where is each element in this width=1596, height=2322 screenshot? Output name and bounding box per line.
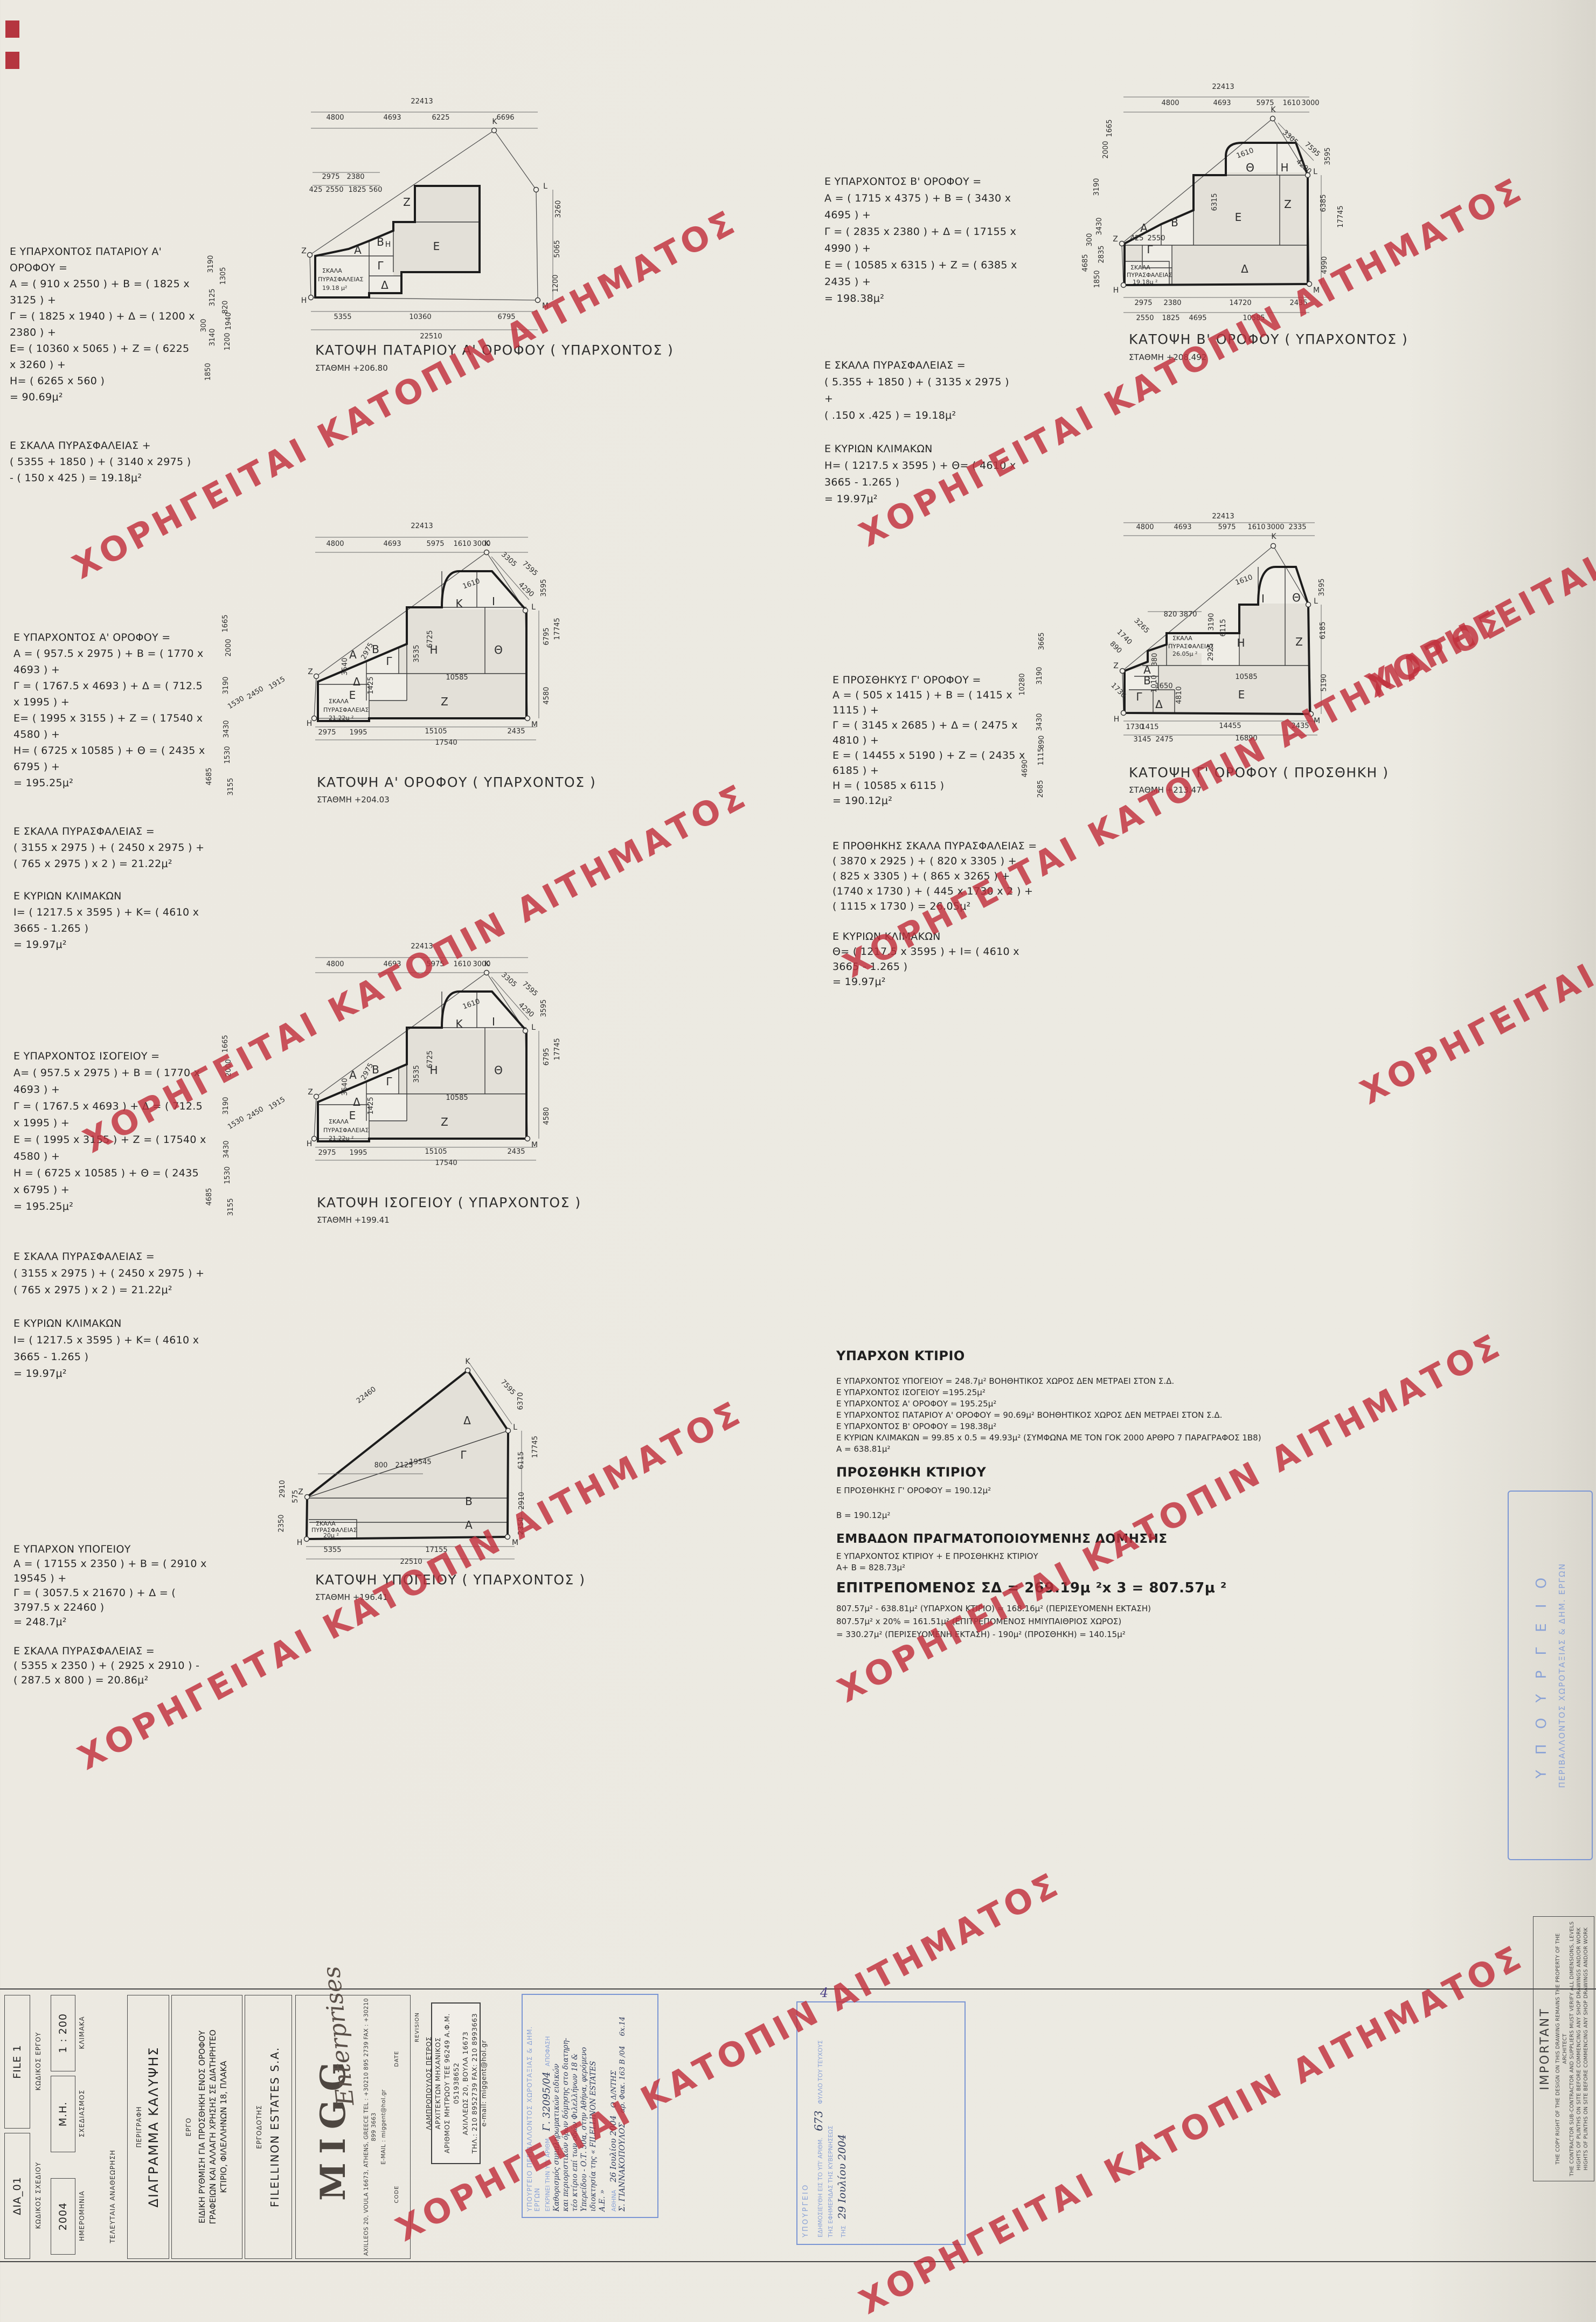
dimension-label: 2450 [246,1105,265,1121]
point-label: L [513,1423,517,1432]
zone-label: Γ [386,655,392,668]
dimension-label: 17540 [435,739,457,747]
description-value: ΔΙΑΓΡΑΜΜΑ ΚΑΛΥΨΗΣ [146,2047,161,2208]
important-notice: IMPORTANT THE COPY RIGHT OF THE DESIGN O… [1533,1916,1594,2181]
field-designer: M.H. [51,2076,75,2152]
dimension-label: ΣΚΑΛΑ [329,698,349,705]
point-label: K [1271,106,1276,114]
point-label: K [484,539,490,548]
point-label: Z [301,247,307,255]
dimension-label: 1610 [1282,99,1300,107]
registration-mark [5,20,19,38]
dimension-label: ΣΚΑΛΑ [322,267,342,274]
point-label: L [1314,597,1318,606]
stamp2-number-handwritten: 673 [812,2111,825,2131]
dimension-label: 3305 [499,971,518,989]
titleblock-top-border [0,1988,1596,1990]
dimension-label: 6115 [517,1451,525,1469]
point-label: Z [308,1088,313,1097]
point-label: K [465,1357,470,1366]
dimension-label: 10280 [1018,673,1026,695]
dimension-label: 300 [1086,233,1094,247]
dimension-label: 1915 [267,675,287,691]
zone-label: Ε [349,689,356,702]
plan-title: ΚΑΤΟΨΗ ΙΣΟΓΕΙΟΥ ( ΥΠΑΡΧΟΝΤΟΣ ) [317,1195,581,1210]
dimension-label: 19.18 μ² [322,285,347,292]
ministry-name: Υ Π Ο Υ Ρ Γ Ε Ι Ο [1533,1572,1550,1779]
dimension-label: 17745 [1337,205,1345,227]
registration-mark [5,52,19,69]
dimension-label: 3190 [207,255,215,273]
dimension-label: ΠΥΡΑΣΦΑΛΕΙΑΣ [318,276,364,283]
dimension-label: 2550 [325,186,343,194]
point-label: L [1313,168,1317,176]
dimension-label: 1530 [226,1115,246,1131]
zone-label: Θ [1292,591,1301,604]
dimension-label: 15105 [425,727,447,736]
dimension-label: 3125 [209,288,217,306]
dimension-label: 2975 [1134,299,1152,307]
important-title: IMPORTANT [1538,2007,1552,2090]
ministry-side-stamp: Υ Π Ο Υ Ρ Γ Ε Ι Ο ΠΕΡΙΒΑΛΛΟΝΤΟΣ ΧΩΡΟΤΑΞΙ… [1508,1491,1593,1860]
date-label: DATE [394,2051,400,2067]
dimension-label: 4580 [543,687,551,704]
stamp2-date-handwritten: 29 Ιουλίου 2004 [836,2134,848,2219]
zone-label: Γ [377,259,384,272]
dimension-label: 560 [369,186,383,194]
zone-label: Θ [494,1064,503,1077]
dimension-label: 2435 [507,1148,525,1156]
dimension-label: 10360 [409,313,431,321]
zone-label: Α [354,244,362,257]
scanned-architectural-sheet: { "watermark": {"text": "ΧΟΡΗΓΕΙΤΑΙ ΚΑΤΟ… [0,0,1596,2273]
dimension-label: 17540 [435,1159,457,1167]
dimension-label: 425 [1130,234,1144,242]
stamp2-side: ΥΠΟΥΡΓΕΙΟ [802,2184,810,2237]
dimension-label: 2910 [279,1480,287,1498]
project-value: ΕΙΔΙΚΗ ΡΥΘΜΙΣΗ ΓΙΑ ΠΡΟΣΘΗΚΗ ΕΝΟΣ ΟΡΟΦΟΥ … [197,2029,229,2224]
dimension-label: 2380 [346,173,364,181]
dimension-label: 15105 [425,1148,447,1156]
dimension-label: 1115 [1037,747,1045,765]
dimension-label: 2835 [1098,245,1106,263]
dimension-label: 4685 [205,1188,213,1205]
dimension-label: 4800 [1136,523,1154,531]
calc-block-basement: Ε ΥΠΑΡΧΟΝ ΥΠΟΓΕΙΟΥ Α = ( 17155 x 2350 ) … [13,1542,207,1688]
dimension-label: 4690 [1021,759,1029,777]
dimension-label: 3540 [341,1078,349,1096]
dimension-label: 3430 [223,720,231,738]
zone-label: Β [372,643,379,656]
dimension-label: 4693 [383,114,401,122]
dimension-label: 890 [1108,640,1123,655]
dimension-label: 6795 [543,1048,551,1065]
important-text: THE COPY RIGHT OF THE DESIGN ON THIS DRA… [1555,1919,1590,2179]
dimension-label: 2000 [1102,141,1110,158]
zone-label: Η [1237,636,1245,649]
zone-label: Η [1280,161,1288,174]
zone-label: Γ [1136,690,1142,703]
dimension-label: 4693 [1213,99,1231,107]
dimension-label: 10585 [1235,673,1257,681]
stamp1-ref2-handwritten: 6x.14 [619,2016,627,2036]
point-label: L [531,1023,536,1032]
field-sheet-code-label: ΚΩΔΙΚΟΣ ΣΧΕΔΙΟΥ [30,2133,46,2258]
zone-label: Ε [1235,211,1242,224]
point-label: L [531,603,536,612]
top-cells [442,992,524,1030]
architect-stamp: ΛΑΜΠΡΟΠΟΥΛΟΣ ΠΕΤΡΟΣ ΑΡΧΙΤΕΚΤΩΝ ΜΗΧΑΝΙΚΟΣ… [431,2002,481,2164]
dimension-label: 820 [221,301,230,314]
dimension-label: 4800 [326,114,344,122]
dimension-label: 1915 [267,1096,287,1112]
dimension-label: ΠΥΡΑΣΦΑΛΕΙΑΣ [1127,272,1172,279]
dimension-label: 1995 [349,1149,367,1157]
dimension-label: 425 [309,186,323,194]
floor-plan-c-addition: ΚΑΤΟΨΗ Γ' ΟΡΟΦΟΥ ( ΠΡΟΣΘΗΚΗ ) ΣΤΑΘΜΗ +21… [1013,507,1596,819]
dimension-label: 2450 [246,685,265,701]
dimension-label: 1610 [453,540,471,548]
plan-title: ΚΑΤΟΨΗ Α' ΟΡΟΦΟΥ ( ΥΠΑΡΧΟΝΤΟΣ ) [317,774,596,790]
zone-label: Η [429,1064,438,1077]
dimension-label: 6696 [496,114,514,122]
dimension-label: 6795 [543,627,551,645]
zone-label: Γ [460,1448,467,1461]
dimension-label: 17745 [553,618,561,640]
point-label: Η [385,240,391,249]
field-date-label: ΗΜΕΡΟΜΗΝΙΑ [75,2178,88,2254]
dimension-label: 4800 [326,540,344,548]
ministry-publication-stamp: ΥΠΟΥΡΓΕΙΟ ΕΔΗΜΟΣΙΕΥΘΗ ΕΙΣ ΤΟ ΥΠ' ΑΡΙΘΜ. … [796,2001,966,2245]
dimension-label: 3190 [1036,667,1044,684]
dimension-label: 5190 [1320,674,1328,691]
dimension-label: 1995 [349,729,367,737]
zone-label: Ι [1261,592,1265,605]
ministry-department: ΠΕΡΙΒΑΛΛΟΝΤΟΣ ΧΩΡΟΤΑΞΙΑΣ & ΔΗΜ. ΕΡΓΩΝ [1557,1563,1567,1788]
point-label: M [531,720,538,729]
zone-label: Α [1140,221,1148,234]
zone-label: Δ [1155,698,1163,711]
calc-block-a-floor: Ε ΥΠΑΡΧΟΝΤΟΣ Α' ΟΡΟΦΟΥ = Α = ( 957.5 x 2… [13,629,207,953]
dimension-label: ΣΚΑΛΑ [1172,635,1192,642]
point-label: Z [308,668,313,676]
dimension-label: 1665 [1106,119,1114,137]
dimension-label: 7595 [521,560,539,578]
zone-label: Θ [494,643,503,656]
dimension-label: 1415 [1141,723,1158,731]
dimension-label: 3305 [499,551,518,569]
dimension-label: 5975 [1218,523,1236,531]
dimension-label: 3430 [1036,713,1044,731]
point-label: H [1113,286,1119,295]
dimension-label: 2975 [322,173,339,181]
dimension-label: 1825 [348,186,366,194]
field-date: 2004 [51,2178,75,2255]
zone-label: Α [1143,663,1151,676]
dimension-label: 3190 [1208,613,1216,630]
dimension-label: 17745 [531,1436,539,1458]
dimension-label: 4695 [1189,314,1206,322]
dimension-label: 7595 [499,1378,517,1396]
dimension-label: 22460 [355,1385,378,1405]
dimension-label: 1010 [1150,675,1158,692]
plan-level: ΣΤΑΘΜΗ +204.03 [317,795,390,805]
revision-label: REVISION [412,1995,422,2060]
zone-label: Θ [1246,161,1254,174]
dimension-label: 19545 [409,1458,431,1466]
dimension-label: 5065 [553,240,561,258]
field-file-code: FILE 1 [4,1995,30,2129]
dimension-label: 5355 [334,313,351,321]
description-label: ΠΕΡΙΓΡΑΦΗ [135,2106,143,2148]
dimension-label: 3540 [341,657,349,675]
dimension-label: 1940 [225,312,233,330]
dimension-label: 4800 [326,960,344,968]
zone-label: Α [349,1069,357,1082]
dimension-label: 3190 [222,1097,230,1114]
zone-label: Β [1171,216,1178,229]
point-label: L [543,182,547,191]
dimension-label: 14720 [1229,299,1251,307]
client-label: ΕΡΓΟΔΟΤΗΣ [255,2105,263,2149]
dimension-label: ΠΥΡΑΣΦΑΛΕΙΑΣ [1168,643,1214,650]
field-scale-label: ΚΛΙΜΑΚΑ [75,1995,88,2070]
point-label: K [484,960,490,968]
dimension-label: 3595 [540,999,548,1017]
dimension-label: 300 [200,319,208,332]
stamp2-line2: ΦΥΛΛΟ ΤΟΥ ΤΕΥΧΟΥΣ [817,2040,824,2104]
code-label: CODE [394,2186,400,2203]
dimension-label: 4810 [1175,686,1183,704]
zone-label: Ι [492,1015,495,1028]
dimension-label: 380 [1151,653,1159,667]
dimension-label: 6185 [1319,621,1327,639]
stamp2-line1: ΕΔΗΜΟΣΙΕΥΘΗ ΕΙΣ ΤΟ ΥΠ' ΑΡΙΘΜ. [817,2138,824,2237]
zone-label: Γ [386,1075,392,1088]
dimension-label: 3000 [1266,523,1284,531]
dimension-label: 1825 [1162,314,1179,322]
zone-label: Δ [1241,262,1248,275]
dimension-label: 4693 [383,540,401,548]
dimension-label: 4685 [1081,254,1090,272]
dimension-label: 4685 [205,767,213,785]
point-label: H [307,1140,313,1148]
dimension-label: 1305 [219,267,227,285]
dimension-label: 1530 [224,746,232,764]
zone-label: Ι [492,595,495,608]
stamp2-line3: ΤΗΣ ΕΦΗΜΕΡΙΔΑΣ ΤΗΣ ΚΥΒΕΡΝΗΣΕΩΣ [827,2126,834,2237]
titleblock-bottom-border [0,2261,1596,2262]
dimension-label: ΣΚΑΛΑ [329,1118,349,1125]
dimension-label: ΣΚΑΛΑ [1130,264,1150,271]
dimension-label: 1610 [1247,523,1265,531]
dimension-label: 22413 [1212,83,1234,91]
dimension-label: 22413 [1212,512,1234,521]
dimension-label: 2475 [1155,736,1173,744]
dimension-label: 10585 [446,674,468,682]
dimension-label: 5975 [426,540,444,548]
dimension-label: 7595 [1303,141,1322,158]
dimension-label: 3430 [223,1140,231,1158]
dimension-label: 6370 [517,1392,525,1410]
field-scale: 1 : 200 [51,1995,75,2071]
dimension-label: 3595 [1318,578,1326,596]
stamp1-city: ΑΘΗΝΑ [610,2190,617,2212]
plan-level: ΣΤΑΘΜΗ +199.41 [317,1215,390,1225]
plan-level: ΣΤΑΘΜΗ +206.80 [315,363,388,373]
point-label: Z [298,1488,303,1496]
dimension-label: 1850 [1093,270,1101,288]
zone-label: Γ [1147,243,1153,256]
point-label: K [492,117,497,126]
dimension-label: 3140 [209,328,217,346]
dimension-label: 2380 [1163,299,1181,307]
floor-plan-basement: ΚΑΤΟΨΗ ΥΠΟΓΕΙΟΥ ( ΥΠΑΡΧΟΝΤΟΣ ) ΣΤΑΘΜΗ +1… [237,1312,830,1619]
zone-label: Ζ [441,695,448,708]
dimension-label: 800 [374,1461,388,1470]
zone-label: Δ [381,279,388,292]
field-designer-label: ΣΧΕΔΙΑΣΜΟΣ [75,2076,88,2151]
zone-label: Ζ [403,196,411,209]
point-label: Z [1113,235,1118,244]
architect-stamp-text: ΛΑΜΠΡΟΠΟΥΛΟΣ ΠΕΤΡΟΣ ΑΡΧΙΤΕΚΤΩΝ ΜΗΧΑΝΙΚΟΣ… [424,2004,488,2163]
dimension-label: 17745 [553,1038,561,1060]
logo-address: AXILLEOS 20, VOULA 16673, ATHENS, GREECE… [363,1995,378,2258]
project-label: ΕΡΓΟ [185,2118,192,2137]
dimension-label: 20μ ² [323,1532,339,1539]
summary-addition-heading: ΠΡΟΣΘΗΚΗ ΚΤΙΡΙΟΥ [836,1465,986,1480]
zone-label: Κ [455,597,463,610]
dimension-label: 3430 [1095,217,1104,235]
calc-block-loft-a: Ε ΥΠΑΡΧΟΝΤΟΣ ΠΑΤΑΡΙΟΥ Α' ΟΡΟΦΟΥ = Α = ( … [10,244,196,486]
dimension-label: 3000 [1301,99,1319,107]
summary-b-value: Β = 190.12μ² [836,1510,1321,1521]
dimension-label: ΠΥΡΑΣΦΑΛΕΙΑΣ [323,1127,369,1134]
dimension-label: ΠΥΡΑΣΦΑΛΕΙΑΣ [323,706,369,713]
dimension-label: 2975 [318,1149,336,1157]
point-label: H [1114,715,1120,724]
zone-label: Δ [353,675,360,688]
dimension-label: 6115 [1219,619,1227,636]
zone-label: Ε [1238,688,1245,701]
zone-label: Δ [353,1096,360,1108]
dimension-label: 3265 [1132,617,1150,635]
zone-label: Β [372,1063,379,1076]
dimension-label: 26.05μ ² [1172,650,1197,657]
floor-plan-a: ΚΑΤΟΨΗ Α' ΟΡΟΦΟΥ ( ΥΠΑΡΧΟΝΤΟΣ ) ΣΤΑΘΜΗ +… [183,515,603,827]
dimension-label: 3145 [1133,736,1151,744]
zone-label: Ζ [1295,635,1303,648]
point-label: H [307,719,313,728]
building-fill [307,1370,508,1539]
dimension-label: 1665 [221,614,230,632]
zone-label: Δ [463,1414,471,1427]
zone-label: Β [465,1495,473,1508]
dimension-label: 7595 [521,980,539,998]
dimension-label: 2335 [1288,523,1306,531]
dimension-label: 21.22μ ² [329,1135,353,1142]
dimension-label: 4800 [1161,99,1179,107]
point-label: M [531,1141,538,1149]
dimension-label: 820 [1164,611,1177,619]
stamp1-line2: ΑΠΟΦΑΣΗ [544,2036,551,2067]
field-client: ΕΡΓΟΔΟΤΗΣ FILELLINON ESTATES S.A. [245,1995,292,2259]
floor-plan-b: ΚΑΤΟΨΗ Β' ΟΡΟΦΟΥ ( ΥΠΑΡΧΟΝΤΟΣ ) ΣΤΑΘΜΗ +… [1056,75,1596,377]
field-sheet-code: ΔΙΑ_01 [4,2133,30,2259]
zone-label: Κ [455,1017,463,1030]
dimension-label: 2550 [1136,314,1154,322]
dimension-label: 1850 [204,363,212,380]
dimension-label: 2975 [318,729,336,737]
dimension-label: 1425 [367,676,375,694]
dimension-label: 6385 [1320,194,1328,212]
dimension-label: 6315 [1211,193,1219,211]
point-label: Z [1113,662,1119,670]
dimension-label: 3155 [227,778,235,795]
dimension-label: 2550 [1147,234,1165,242]
dimension-label: 3190 [1093,178,1101,196]
dimension-label: 3190 [222,676,230,694]
dimension-label: 3535 [413,644,421,662]
zone-label: Ζ [1284,198,1292,211]
zone-label: Β [377,235,384,248]
dimension-label: 22413 [411,522,433,530]
point-label: K [1271,532,1276,541]
dimension-label: 1530 [226,695,246,711]
dimension-label: 3870 [1179,611,1197,619]
field-last-revision-label: ΤΕΛΕΥΤΑΙΑ ΑΝΑΘΕΩΡΗΣΗ [106,2135,120,2258]
dimension-label: 1530 [224,1166,232,1184]
field-project: ΕΡΓΟ ΕΙΔΙΚΗ ΡΥΘΜΙΣΗ ΓΙΑ ΠΡΟΣΘΗΚΗ ΕΝΟΣ ΟΡ… [171,1995,242,2259]
zone-label: Η [429,643,438,656]
dimension-label: 5355 [323,1546,341,1554]
dimension-label: 3260 [554,200,563,218]
dimension-label: 6225 [432,114,449,122]
dimension-label: 2685 [1037,780,1045,798]
dimension-label: 22413 [411,98,433,106]
dimension-label: 3595 [540,579,548,597]
dimension-label: 1200 [224,332,232,350]
field-description: ΠΕΡΙΓΡΑΦΗ ΔΙΑΓΡΑΜΜΑ ΚΑΛΥΨΗΣ [127,1995,169,2259]
point-label: H [301,296,307,305]
dimension-label: 890 [1038,736,1046,749]
dimension-label: 19.18μ ² [1133,279,1157,286]
logo-email: E-MAIL : miggent@hol.gr [380,2089,387,2165]
dimension-label: 14455 [1219,722,1241,730]
dimension-label: 22510 [420,332,442,341]
dimension-label: 10585 [446,1094,468,1102]
zone-label: Α [349,648,357,661]
dimension-label: 4693 [1174,523,1191,531]
zone-label: Ζ [441,1115,448,1128]
client-value: FILELLINON ESTATES S.A. [268,2047,281,2207]
dimension-label: 3155 [227,1198,235,1216]
dimension-label: 2000 [225,639,233,656]
dimension-label: 21.22μ ² [329,715,353,722]
stamp1-number-handwritten: Γ. 32095/04 [541,2071,552,2131]
dimension-label: 2350 [277,1514,286,1532]
zone-label: Ε [433,240,440,253]
summary-existing-building-heading: ΥΠΑΡΧΟΝ ΚΤΙΡΙΟ [836,1348,965,1363]
dimension-label: 3595 [1324,147,1332,165]
dimension-label: 3665 [1038,632,1046,650]
dimension-label: 2435 [507,727,525,736]
dimension-label: 3535 [413,1065,421,1083]
dimension-label: 1425 [367,1097,375,1114]
field-file-code-label: ΚΩΔΙΚΟΣ ΕΡΓΟΥ [30,1995,46,2127]
dimension-label: 4580 [543,1107,551,1125]
zone-label: Ε [349,1109,356,1122]
